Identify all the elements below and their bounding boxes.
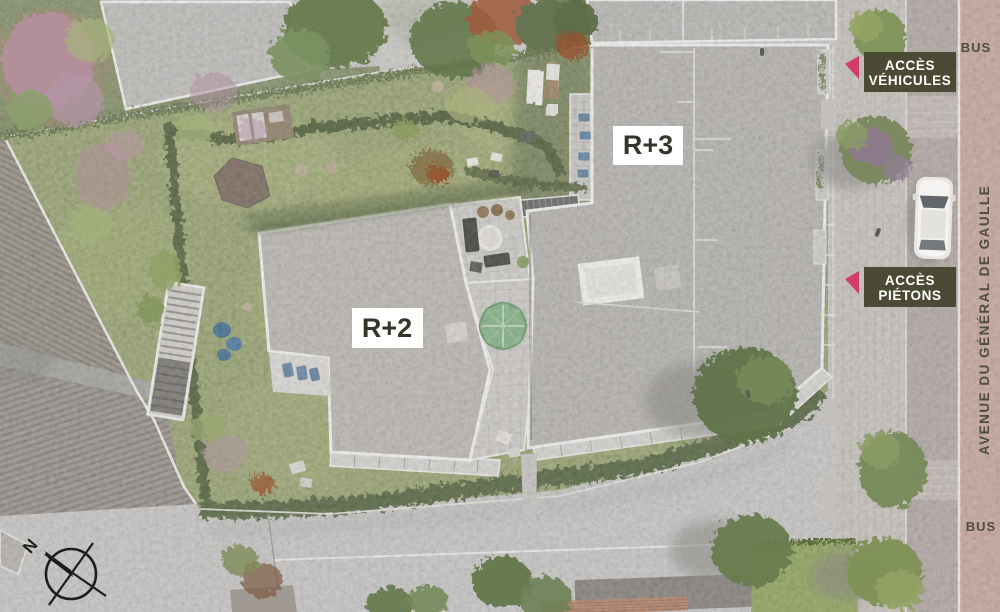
svg-text:R+3: R+3 (623, 130, 673, 160)
svg-text:AVENUE DU GÉNÉRAL DE GAULLE: AVENUE DU GÉNÉRAL DE GAULLE (977, 185, 992, 455)
svg-text:PIÉTONS: PIÉTONS (878, 288, 941, 303)
svg-text:BUS: BUS (961, 40, 991, 55)
svg-text:BUS: BUS (966, 519, 996, 534)
svg-text:VÉHICULES: VÉHICULES (869, 73, 952, 88)
svg-text:ACCÈS: ACCÈS (885, 273, 935, 288)
svg-text:R+2: R+2 (362, 313, 412, 343)
svg-text:ACCÈS: ACCÈS (885, 58, 935, 73)
